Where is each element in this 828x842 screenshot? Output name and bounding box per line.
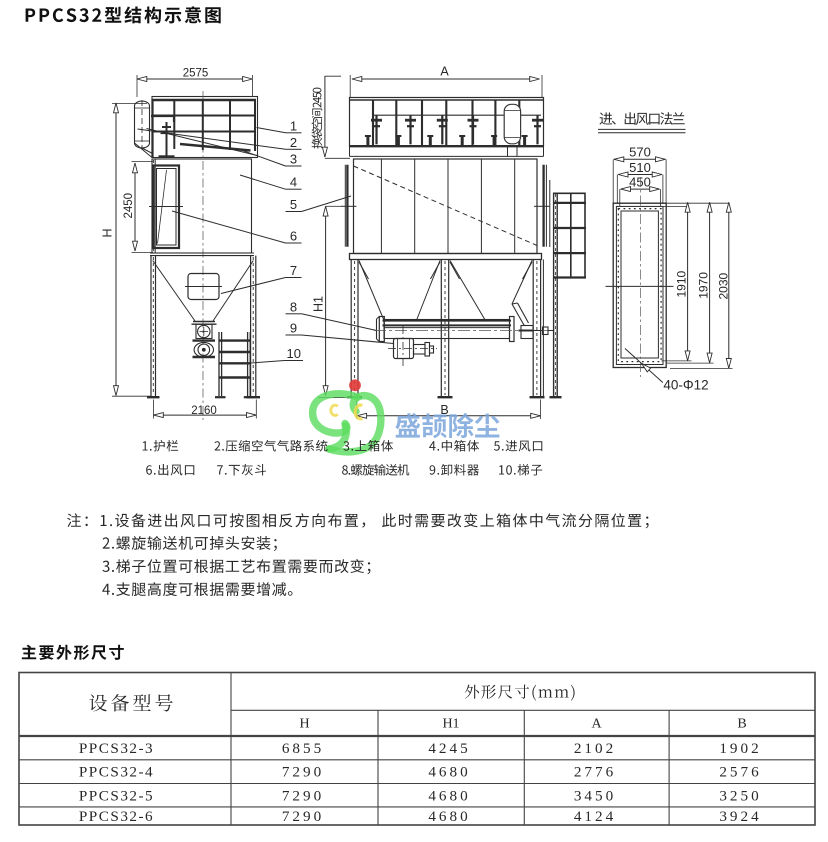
svg-text:3924: 3924 xyxy=(719,808,761,825)
svg-text:9: 9 xyxy=(290,321,297,336)
svg-text:3450: 3450 xyxy=(574,787,616,804)
svg-text:4: 4 xyxy=(290,175,297,190)
svg-text:7290: 7290 xyxy=(282,808,324,825)
svg-text:450: 450 xyxy=(629,174,651,189)
svg-text:8: 8 xyxy=(290,299,297,314)
svg-text:2030: 2030 xyxy=(716,272,730,299)
svg-text:B: B xyxy=(737,717,746,732)
svg-text:4680: 4680 xyxy=(428,764,470,781)
svg-text:2: 2 xyxy=(290,135,297,150)
svg-text:2450: 2450 xyxy=(123,193,135,219)
svg-text:2575: 2575 xyxy=(183,67,209,79)
svg-text:7290: 7290 xyxy=(282,787,324,804)
svg-text:4680: 4680 xyxy=(428,808,470,825)
svg-text:1910: 1910 xyxy=(674,270,688,297)
svg-text:510: 510 xyxy=(629,160,651,175)
svg-text:4245: 4245 xyxy=(428,740,470,757)
svg-text:A: A xyxy=(591,717,602,732)
svg-text:H: H xyxy=(299,717,309,732)
svg-text:PPCS32-3: PPCS32-3 xyxy=(79,740,154,757)
svg-text:H1: H1 xyxy=(442,717,459,732)
svg-text:H1: H1 xyxy=(312,296,326,312)
svg-text:2160: 2160 xyxy=(191,405,217,417)
svg-text:4124: 4124 xyxy=(574,808,616,825)
svg-text:40-Φ12: 40-Φ12 xyxy=(663,378,708,393)
svg-text:2776: 2776 xyxy=(574,764,616,781)
svg-text:7: 7 xyxy=(290,263,297,278)
svg-text:2576: 2576 xyxy=(719,764,761,781)
svg-text:7290: 7290 xyxy=(282,764,324,781)
svg-text:PPCS32-6: PPCS32-6 xyxy=(79,808,154,825)
svg-text:3250: 3250 xyxy=(719,787,761,804)
svg-text:5: 5 xyxy=(290,197,297,212)
svg-text:A: A xyxy=(440,65,449,79)
svg-text:4680: 4680 xyxy=(428,787,470,804)
svg-text:1: 1 xyxy=(290,118,297,133)
svg-text:570: 570 xyxy=(629,145,651,160)
svg-text:PPCS32-4: PPCS32-4 xyxy=(79,764,154,781)
svg-text:6: 6 xyxy=(290,229,297,244)
svg-text:PPCS32-5: PPCS32-5 xyxy=(79,787,154,804)
svg-text:3: 3 xyxy=(290,152,297,167)
svg-text:2102: 2102 xyxy=(574,740,616,757)
svg-text:H: H xyxy=(101,228,115,237)
svg-text:10: 10 xyxy=(287,346,301,361)
svg-text:1902: 1902 xyxy=(719,740,761,757)
svg-text:1970: 1970 xyxy=(697,272,711,299)
svg-text:6855: 6855 xyxy=(282,740,324,757)
